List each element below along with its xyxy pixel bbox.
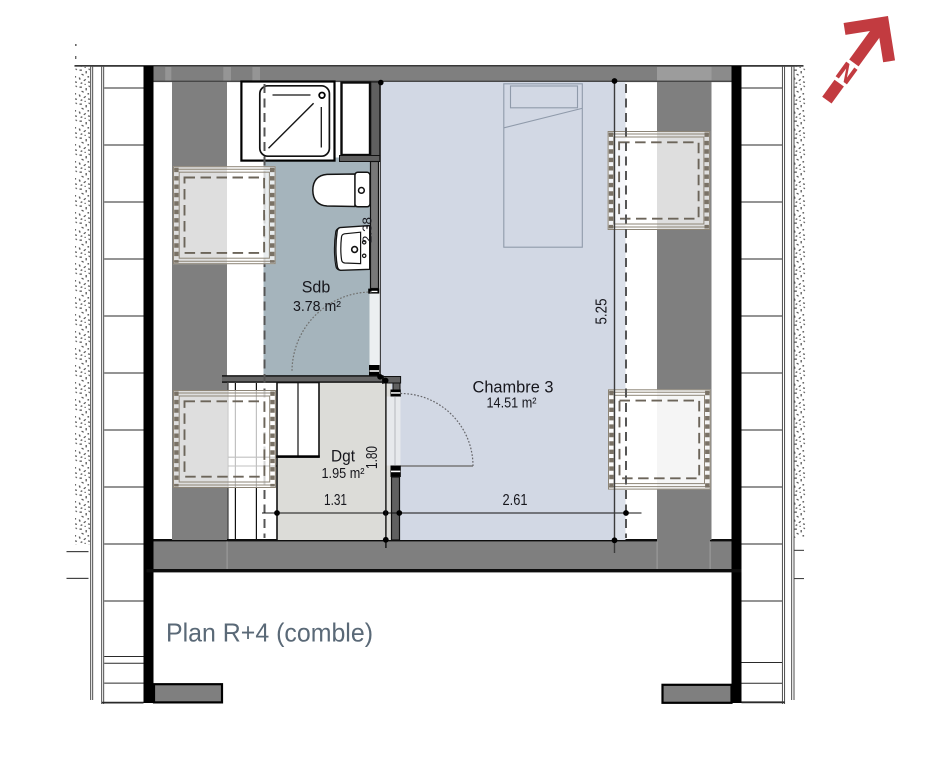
svg-text:1.31: 1.31 xyxy=(324,492,347,509)
svg-text:Dgt: Dgt xyxy=(331,448,355,466)
svg-text:1.95 m²: 1.95 m² xyxy=(322,466,365,482)
svg-text:3.78 m²: 3.78 m² xyxy=(293,299,341,315)
svg-text:2.38: 2.38 xyxy=(361,217,375,243)
svg-text:Sdb: Sdb xyxy=(302,279,331,297)
svg-text:Chambre 3: Chambre 3 xyxy=(473,378,554,396)
svg-text:2.61: 2.61 xyxy=(503,492,528,509)
svg-text:14.51 m²: 14.51 m² xyxy=(487,396,537,412)
svg-text:Plan R+4 (comble): Plan R+4 (comble) xyxy=(166,618,373,648)
svg-text:5.25: 5.25 xyxy=(594,299,611,325)
svg-text:1.80: 1.80 xyxy=(364,446,381,469)
